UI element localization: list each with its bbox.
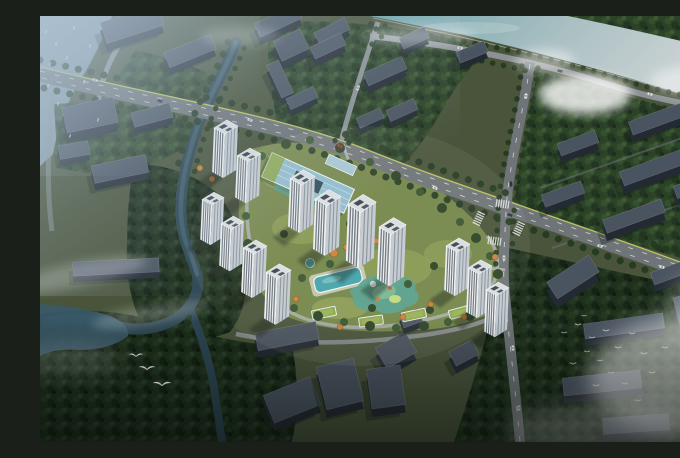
car xyxy=(524,93,527,98)
cloud xyxy=(539,74,631,114)
cloud xyxy=(515,49,575,73)
aerial-rendering xyxy=(40,16,680,442)
car-windshield xyxy=(510,183,512,185)
center-light xyxy=(190,126,530,366)
car-windshield xyxy=(525,95,527,97)
rendering-svg xyxy=(40,16,680,442)
haze-overlay-corner xyxy=(40,16,260,176)
car xyxy=(510,181,513,186)
